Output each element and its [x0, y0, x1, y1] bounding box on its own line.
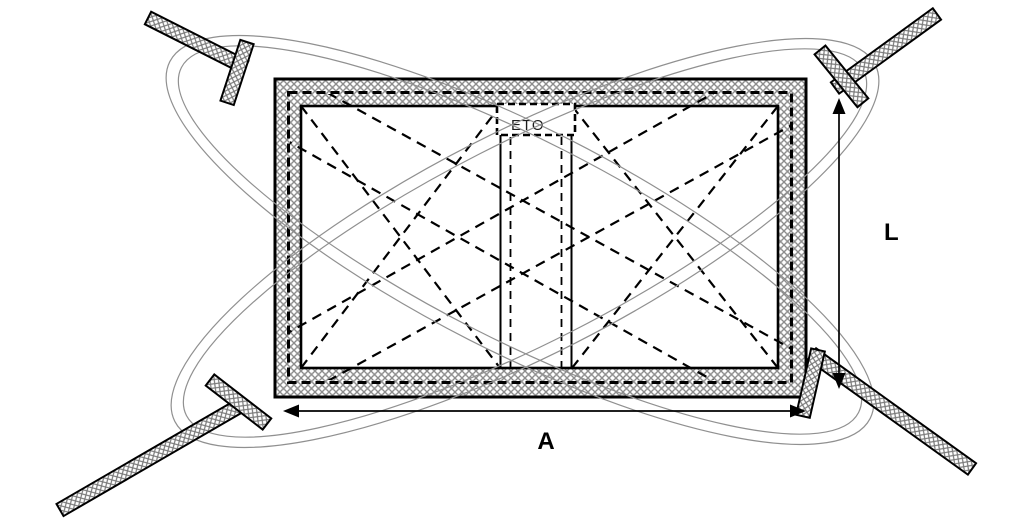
window-package-diagram: ETO — [0, 0, 1024, 529]
window-block: ETO — [268, 60, 830, 414]
height-dimension-label: L — [884, 219, 899, 246]
diagram-canvas: ETO — [0, 0, 1024, 529]
width-dimension-label: A — [537, 428, 554, 455]
inner-frame — [301, 106, 778, 368]
